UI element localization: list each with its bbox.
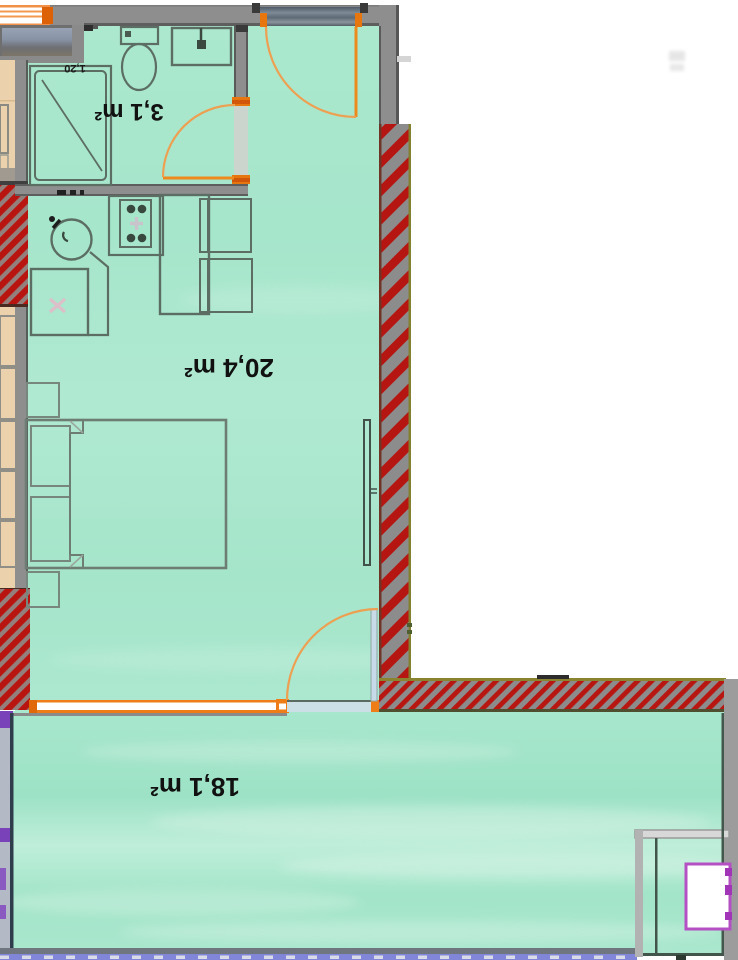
svg-text:3,1 m²: 3,1 m² [94,98,163,125]
svg-text:18,1 m²: 18,1 m² [150,772,240,802]
svg-text:1,20: 1,20 [64,62,85,74]
svg-text:20,4 m²: 20,4 m² [184,353,274,383]
